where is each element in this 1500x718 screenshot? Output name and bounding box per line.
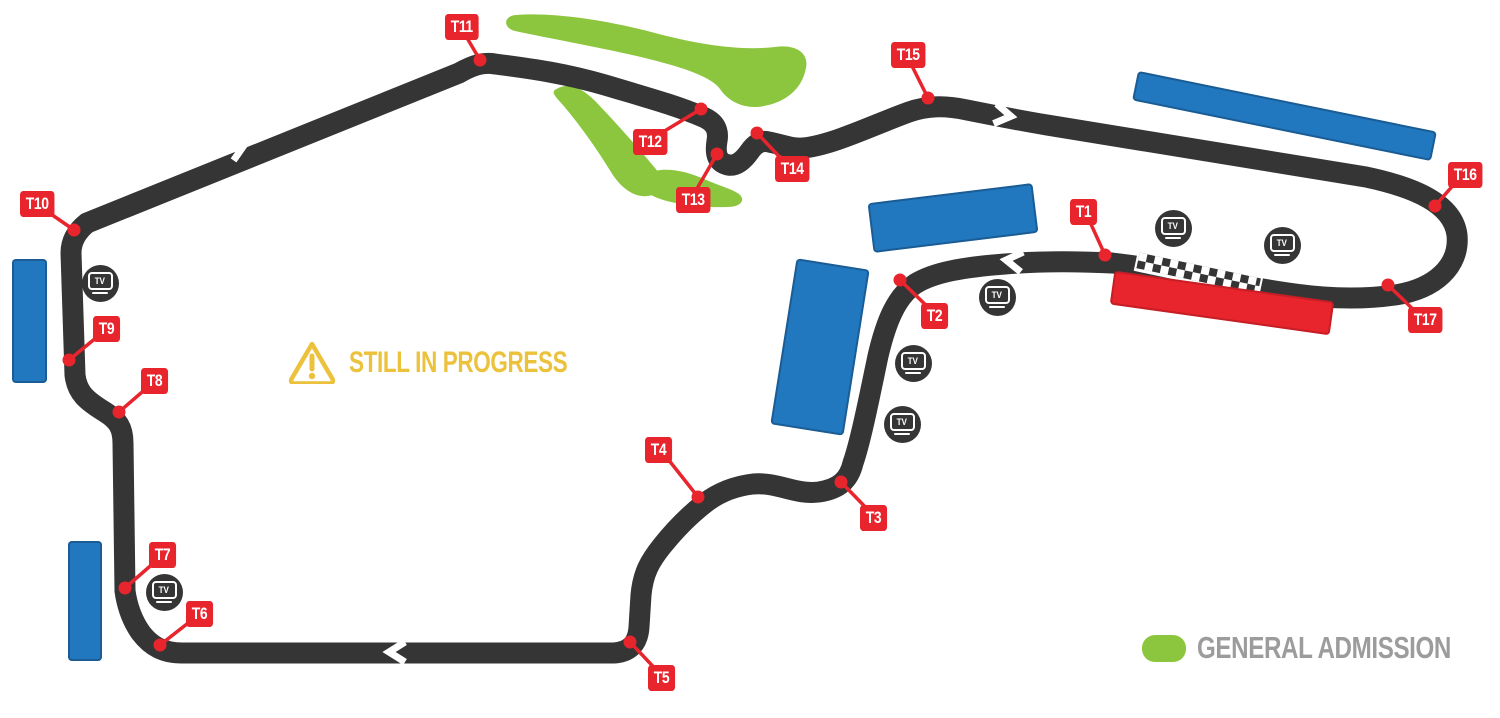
turn-label-t5: T5 xyxy=(648,665,675,691)
legend-label: GENERAL ADMISSION xyxy=(1197,630,1451,666)
turn-dot-t2 xyxy=(894,274,907,287)
turn-label-t13: T13 xyxy=(676,187,710,213)
turn-label-t16: T16 xyxy=(1448,162,1482,188)
turn-dot-t8 xyxy=(113,406,126,419)
turn-dot-t12 xyxy=(695,103,708,116)
turn-dot-t15 xyxy=(922,92,935,105)
turn-dot-t5 xyxy=(624,636,637,649)
turn-label-t1: T1 xyxy=(1070,199,1097,225)
turn-dot-t9 xyxy=(63,354,76,367)
warning-triangle-icon xyxy=(288,341,336,384)
turn-label-t17: T17 xyxy=(1408,307,1442,333)
turn-label-t3: T3 xyxy=(860,505,887,531)
turn-dot-t7 xyxy=(119,582,132,595)
turn-label-t12: T12 xyxy=(633,129,667,155)
turn-label-t9: T9 xyxy=(93,316,120,342)
circuit-map: TVTVTVTVTVTVTV T1T2T3T4T5T6T7T8T9T10T11T… xyxy=(0,0,1500,718)
status-text: STILL IN PROGRESS xyxy=(349,346,567,380)
turn-dot-t14 xyxy=(751,127,764,140)
turn-label-t14: T14 xyxy=(775,156,809,182)
turn-dot-t4 xyxy=(692,491,705,504)
turn-dot-t17 xyxy=(1382,279,1395,292)
legend: GENERAL ADMISSION xyxy=(1142,630,1500,666)
turn-dot-t11 xyxy=(474,54,487,67)
turn-dot-t6 xyxy=(154,639,167,652)
status-note: STILL IN PROGRESS xyxy=(288,341,640,384)
turn-label-t8: T8 xyxy=(141,368,168,394)
turn-label-t2: T2 xyxy=(921,303,948,329)
turn-dot-t3 xyxy=(835,476,848,489)
turn-label-t10: T10 xyxy=(20,191,54,217)
turn-label-t11: T11 xyxy=(445,14,479,40)
turn-label-t4: T4 xyxy=(645,437,672,463)
turn-label-t7: T7 xyxy=(149,542,176,568)
turn-dot-t1 xyxy=(1099,249,1112,262)
turn-dot-t10 xyxy=(68,224,81,237)
general-admission-swatch xyxy=(1142,635,1186,662)
turn-label-t6: T6 xyxy=(186,601,213,627)
turn-dot-t16 xyxy=(1429,200,1442,213)
turn-dot-t13 xyxy=(711,148,724,161)
turn-label-t15: T15 xyxy=(891,42,925,68)
turn-leaders-layer xyxy=(0,0,1500,718)
